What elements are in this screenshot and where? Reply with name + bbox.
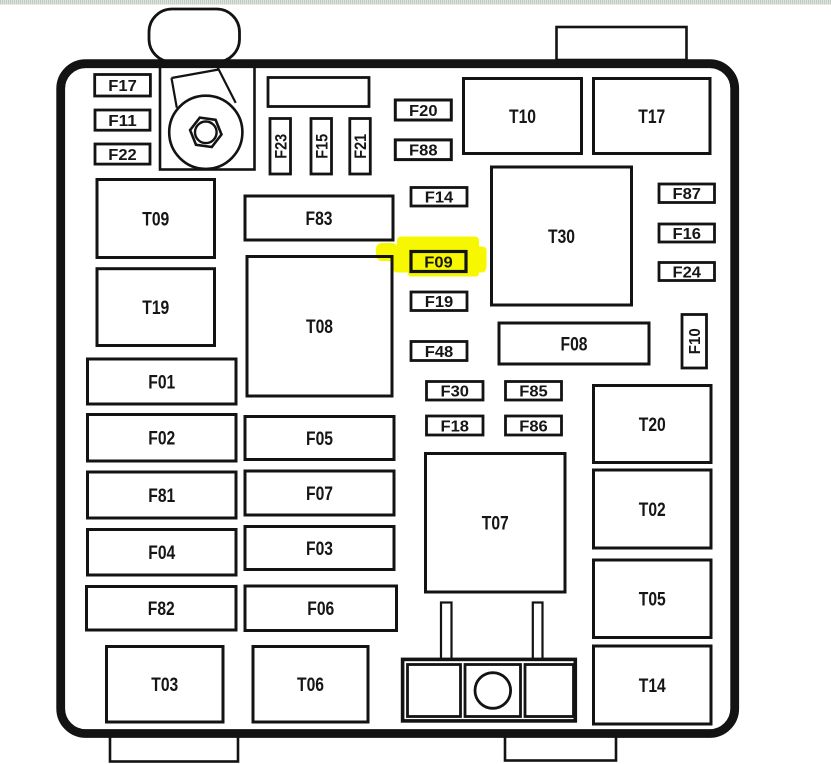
svg-text:F10: F10: [687, 328, 704, 354]
svg-text:F85: F85: [519, 384, 548, 401]
svg-text:F14: F14: [425, 190, 454, 207]
svg-text:F03: F03: [306, 539, 333, 560]
svg-text:F18: F18: [441, 418, 470, 435]
svg-text:F05: F05: [306, 429, 333, 450]
svg-text:F06: F06: [307, 599, 334, 620]
svg-text:F81: F81: [148, 486, 175, 507]
svg-text:T06: T06: [297, 675, 324, 696]
svg-text:F11: F11: [108, 113, 137, 130]
svg-text:F01: F01: [148, 372, 175, 393]
svg-text:F22: F22: [108, 147, 137, 164]
svg-text:T30: T30: [548, 227, 575, 248]
svg-text:F48: F48: [425, 344, 454, 361]
svg-text:F04: F04: [148, 543, 175, 564]
svg-text:T10: T10: [509, 107, 536, 128]
svg-text:F15: F15: [312, 134, 331, 159]
svg-text:T03: T03: [151, 675, 178, 696]
svg-text:T19: T19: [142, 298, 169, 319]
svg-text:F21: F21: [351, 134, 370, 159]
svg-text:F23: F23: [271, 134, 290, 159]
svg-text:F17: F17: [108, 78, 137, 95]
svg-text:F88: F88: [409, 143, 438, 160]
svg-text:F16: F16: [673, 226, 702, 243]
svg-text:F08: F08: [561, 334, 588, 355]
svg-text:F87: F87: [673, 186, 702, 203]
svg-text:F24: F24: [673, 264, 702, 281]
svg-text:F82: F82: [148, 599, 175, 620]
svg-text:F86: F86: [519, 418, 548, 435]
svg-text:T14: T14: [639, 676, 666, 697]
svg-text:F02: F02: [148, 429, 175, 450]
svg-text:F20: F20: [409, 103, 438, 120]
svg-text:F83: F83: [306, 209, 333, 230]
svg-text:T08: T08: [306, 317, 333, 338]
svg-text:T09: T09: [142, 209, 169, 230]
svg-text:T20: T20: [639, 415, 666, 436]
svg-text:T02: T02: [639, 500, 666, 521]
svg-text:F07: F07: [306, 484, 333, 505]
svg-text:F09: F09: [424, 254, 453, 271]
svg-text:T07: T07: [482, 514, 509, 535]
svg-text:F30: F30: [441, 384, 470, 401]
svg-text:T17: T17: [638, 107, 665, 128]
svg-text:F19: F19: [425, 294, 454, 311]
svg-text:T05: T05: [639, 590, 666, 611]
